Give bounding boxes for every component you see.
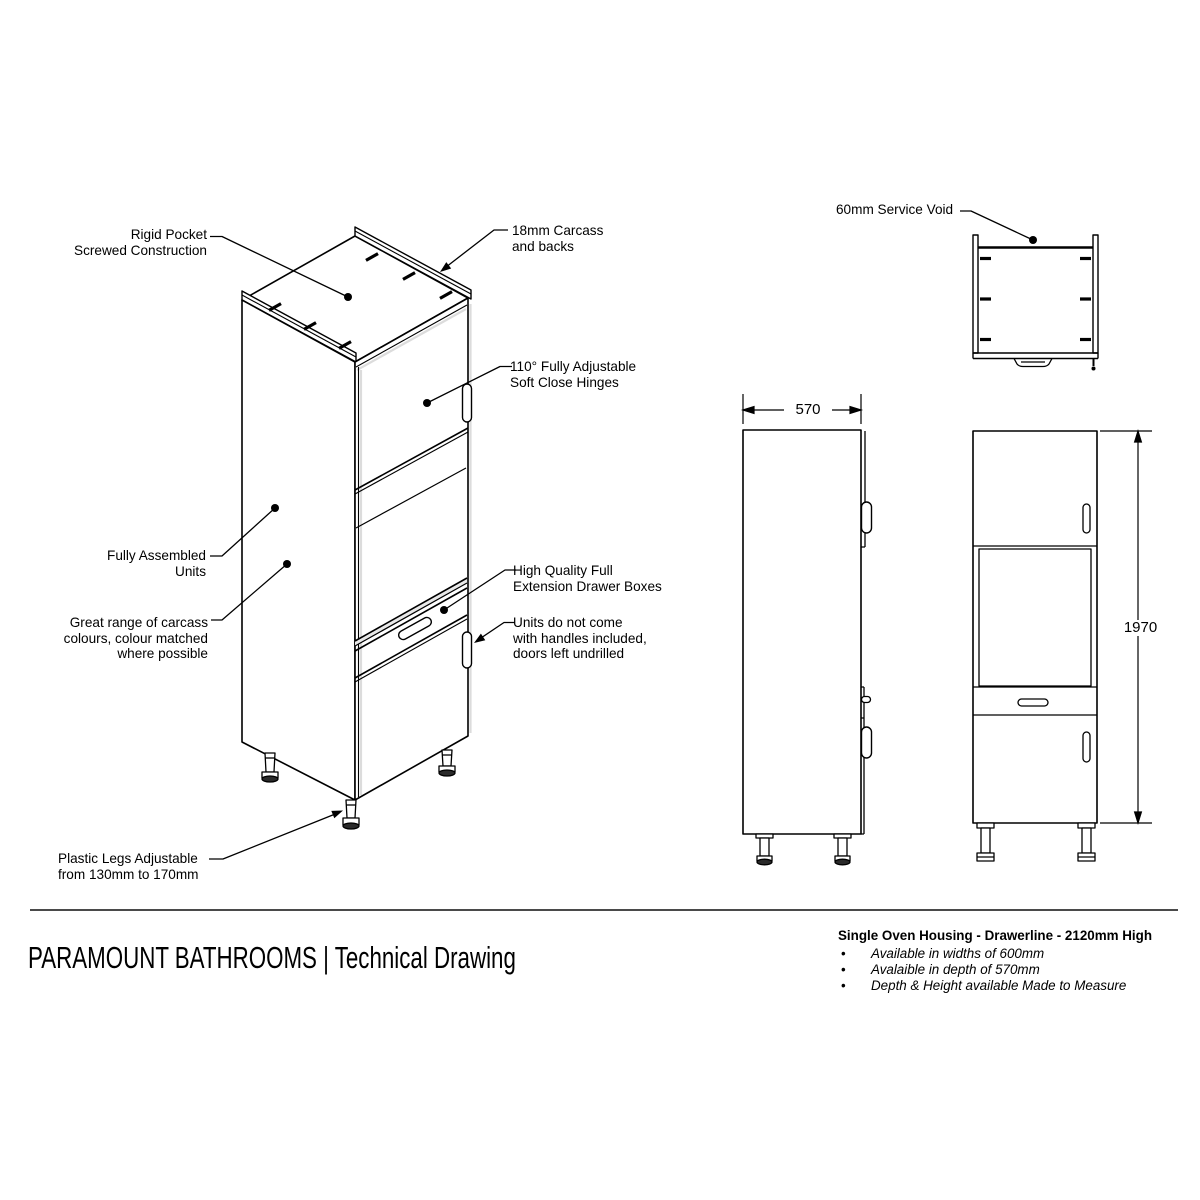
technical-drawing-canvas [0,0,1200,1200]
front-drawer-handle [1018,699,1048,706]
label-plastic-legs: Plastic Legs Adjustable from 130mm to 17… [58,851,199,882]
side-top-door-handle [862,502,872,533]
bullet-icon: • [838,962,871,978]
leader-arrow-no-handles [474,634,485,643]
leader-no-handles [478,623,515,641]
front-view [973,431,1097,861]
product-bullet-text: Depth & Height available Made to Measure [871,978,1126,994]
iso-side-panel [242,300,355,800]
leader-dot-drawer-boxes [440,606,448,614]
side-drawer-handle [862,697,871,703]
front-top-door-handle [1083,504,1090,533]
plan-view [973,235,1098,371]
product-bullet-row: • Available in widths of 600mm [838,946,1188,962]
iso-top-door-handle [463,384,472,422]
label-carcass-backs: 18mm Carcass and backs [512,223,603,254]
leader-plastic-legs [209,815,334,860]
leader-dot-fully-assembled [271,504,279,512]
dim-570-value: 570 [784,402,832,418]
label-service-void: 60mm Service Void [836,202,953,218]
front-carcass [973,431,1097,823]
label-hinges: 110° Fully Adjustable Soft Close Hinges [510,359,636,390]
isometric-view [242,227,472,829]
page-title: PARAMOUNT BATHROOMS | Technical Drawing [28,941,516,975]
leader-dot-service-void [1029,236,1037,244]
technical-drawing-page: Rigid Pocket Screwed Construction 18mm C… [0,0,1200,1200]
leader-service-void [960,211,1033,240]
leader-arrow-plastic-legs [331,811,343,819]
leader-dot-carcass-colours [283,560,291,568]
product-bullet-row: • Depth & Height available Made to Measu… [838,978,1188,994]
plan-hinge-dot [1092,367,1096,371]
leader-dot-hinges [423,399,431,407]
product-spec-block: Single Oven Housing - Drawerline - 2120m… [838,928,1188,994]
product-bullet-text: Available in widths of 600mm [871,946,1044,962]
iso-bottom-door-handle [463,632,472,668]
label-drawer-boxes: High Quality Full Extension Drawer Boxes [513,563,662,594]
side-view [743,430,872,865]
side-carcass [743,430,861,834]
product-bullet-row: • Avalaible in depth of 570mm [838,962,1188,978]
plan-pocket-screw-marks [980,259,1091,340]
label-rigid-pocket: Rigid Pocket Screwed Construction [74,227,207,258]
bullet-icon: • [838,946,871,962]
front-bottom-door-handle [1083,732,1090,762]
label-no-handles: Units do not come with handles included,… [513,615,647,662]
bullet-icon: • [838,978,871,994]
leader-carcass-backs [444,230,508,269]
dim-1970-arrow-bottom [1135,812,1142,823]
product-bullet-text: Avalaible in depth of 570mm [871,962,1040,978]
dim-570-arrow-right [850,407,861,414]
plan-door-handle [1014,359,1052,367]
plan-right-panel [1093,235,1098,353]
label-carcass-colours: Great range of carcass colours, colour m… [64,615,208,662]
front-legs [977,823,1095,861]
side-legs [756,834,851,865]
plan-front-door-edge [973,353,1098,359]
dim-570-arrow-left [743,407,754,414]
side-bottom-door-handle [862,727,872,758]
plan-left-panel [973,235,978,353]
dim-1970-arrow-top [1135,431,1142,442]
leader-dot-rigid-pocket [344,293,352,301]
label-fully-assembled: Fully Assembled Units [107,548,206,579]
product-heading: Single Oven Housing - Drawerline - 2120m… [838,928,1188,944]
footer-divider [30,909,1178,911]
dim-1970-value: 1970 [1117,620,1164,636]
iso-front-face [355,298,468,800]
